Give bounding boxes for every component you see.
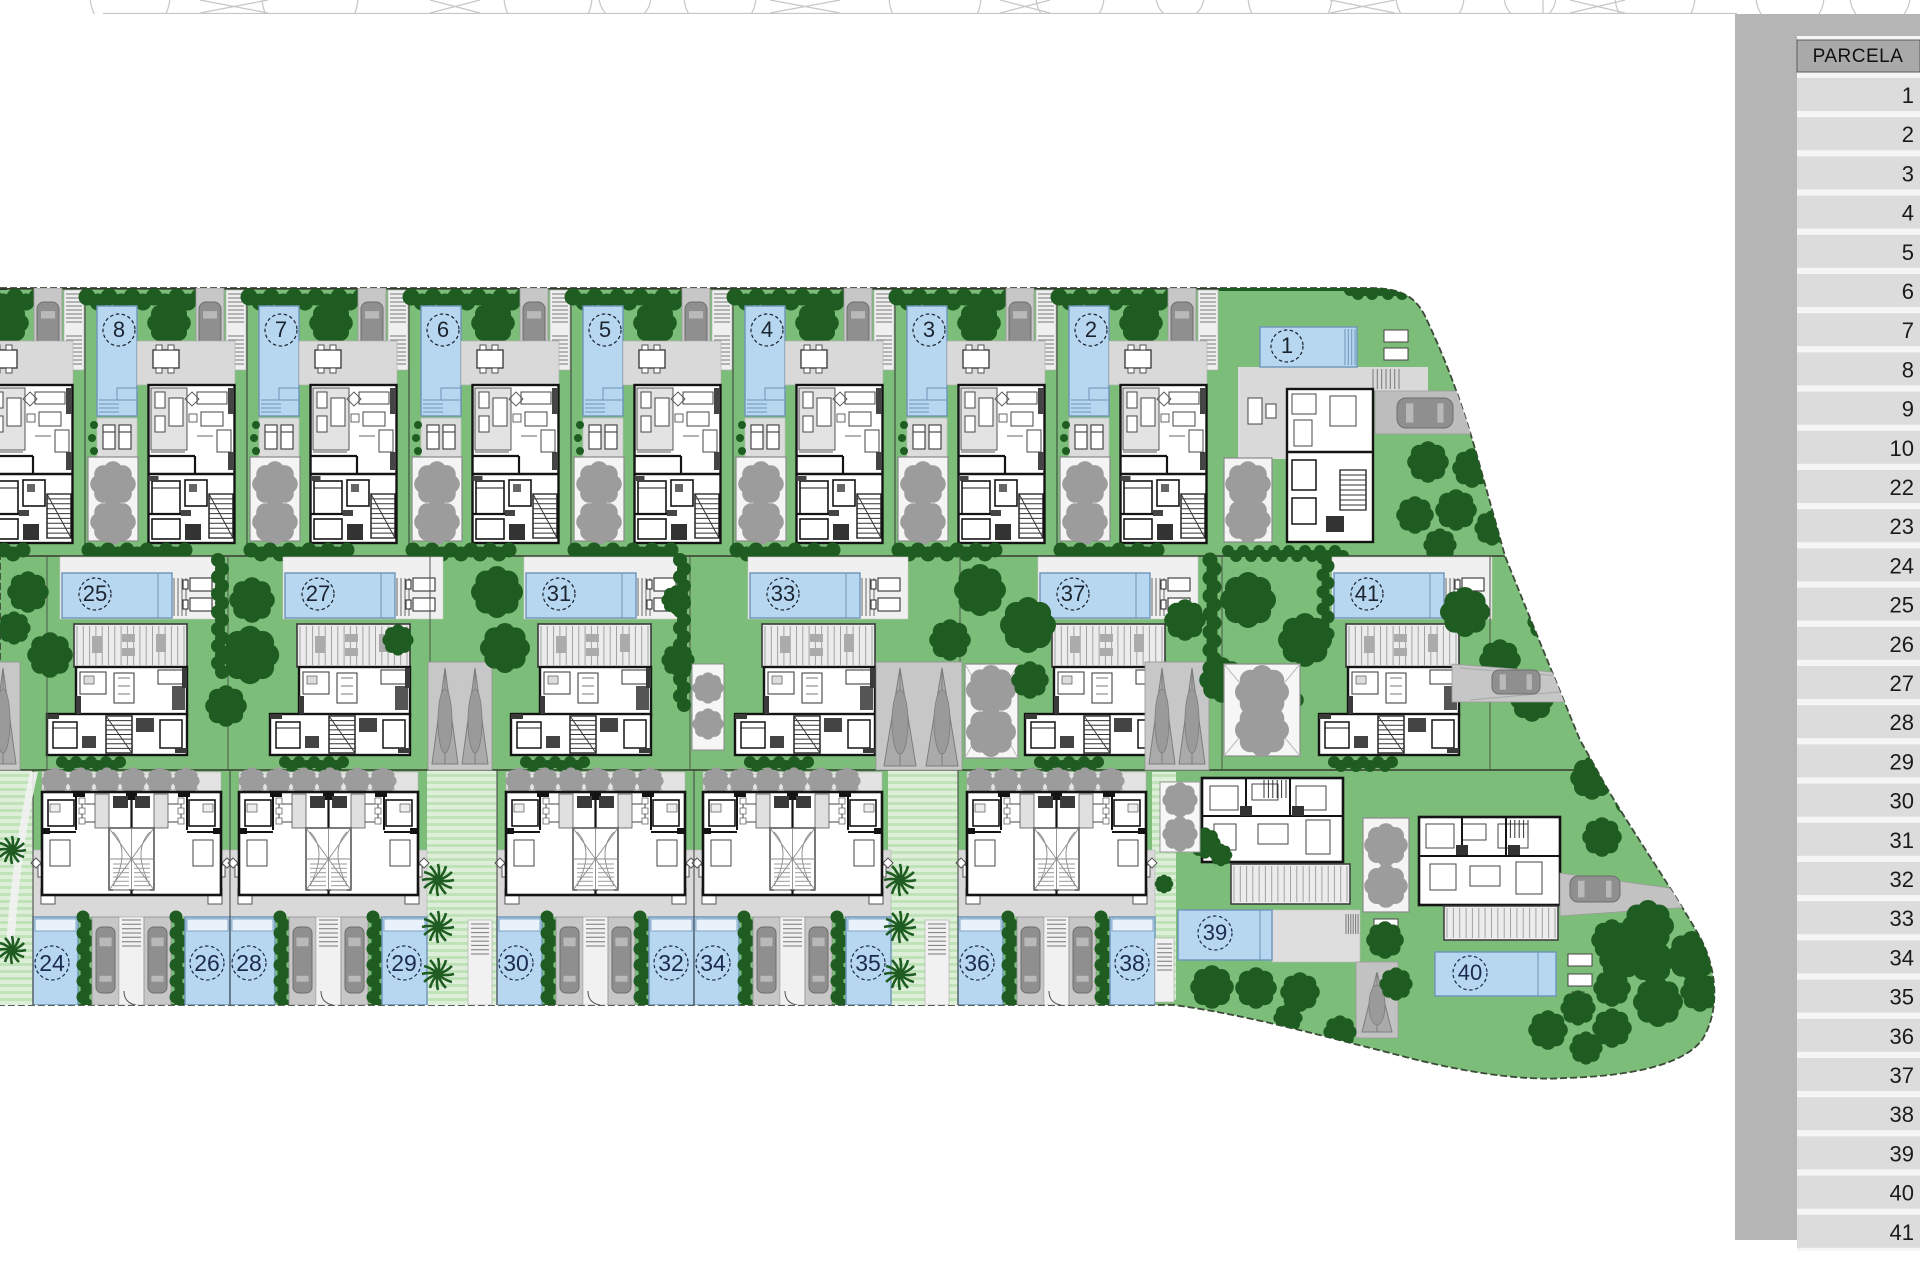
svg-text:26: 26 bbox=[194, 950, 220, 976]
svg-text:33: 33 bbox=[1890, 906, 1914, 931]
svg-text:35: 35 bbox=[1890, 985, 1914, 1010]
svg-text:31: 31 bbox=[547, 581, 571, 606]
svg-text:28: 28 bbox=[236, 950, 262, 976]
svg-text:25: 25 bbox=[83, 581, 107, 606]
svg-text:1: 1 bbox=[1281, 333, 1293, 358]
svg-text:10: 10 bbox=[1890, 436, 1914, 461]
svg-text:40: 40 bbox=[1890, 1181, 1914, 1206]
svg-text:30: 30 bbox=[1890, 789, 1914, 814]
svg-text:3: 3 bbox=[1902, 161, 1914, 186]
svg-text:36: 36 bbox=[1890, 1024, 1914, 1049]
svg-text:22: 22 bbox=[1890, 475, 1914, 500]
svg-text:38: 38 bbox=[1119, 950, 1145, 976]
svg-text:8: 8 bbox=[113, 317, 125, 342]
svg-text:6: 6 bbox=[437, 317, 449, 342]
svg-text:35: 35 bbox=[855, 950, 881, 976]
svg-text:PARCELA: PARCELA bbox=[1813, 46, 1904, 67]
svg-text:28: 28 bbox=[1890, 710, 1914, 735]
svg-text:34: 34 bbox=[700, 950, 726, 976]
svg-text:41: 41 bbox=[1355, 581, 1379, 606]
svg-text:6: 6 bbox=[1902, 279, 1914, 304]
svg-text:24: 24 bbox=[39, 950, 65, 976]
svg-text:34: 34 bbox=[1890, 945, 1914, 970]
svg-text:3: 3 bbox=[923, 317, 935, 342]
svg-text:29: 29 bbox=[1890, 749, 1914, 774]
svg-text:8: 8 bbox=[1902, 357, 1914, 382]
svg-text:24: 24 bbox=[1890, 553, 1914, 578]
svg-text:7: 7 bbox=[1902, 318, 1914, 343]
svg-text:37: 37 bbox=[1890, 1063, 1914, 1088]
svg-text:32: 32 bbox=[658, 950, 684, 976]
svg-text:5: 5 bbox=[1902, 240, 1914, 265]
svg-text:39: 39 bbox=[1890, 1141, 1914, 1166]
svg-text:27: 27 bbox=[306, 581, 330, 606]
svg-text:26: 26 bbox=[1890, 632, 1914, 657]
svg-text:7: 7 bbox=[275, 317, 287, 342]
svg-text:9: 9 bbox=[1902, 397, 1914, 422]
svg-text:30: 30 bbox=[503, 950, 529, 976]
svg-text:39: 39 bbox=[1203, 920, 1227, 945]
svg-text:1: 1 bbox=[1902, 83, 1914, 108]
svg-text:37: 37 bbox=[1061, 581, 1085, 606]
svg-text:31: 31 bbox=[1890, 828, 1914, 853]
svg-text:32: 32 bbox=[1890, 867, 1914, 892]
svg-text:27: 27 bbox=[1890, 671, 1914, 696]
svg-text:40: 40 bbox=[1458, 960, 1482, 985]
svg-text:41: 41 bbox=[1890, 1220, 1914, 1245]
svg-text:2: 2 bbox=[1902, 122, 1914, 147]
svg-text:5: 5 bbox=[599, 317, 611, 342]
svg-text:23: 23 bbox=[1890, 514, 1914, 539]
svg-text:4: 4 bbox=[761, 317, 773, 342]
svg-text:25: 25 bbox=[1890, 593, 1914, 618]
svg-text:2: 2 bbox=[1085, 317, 1097, 342]
svg-text:36: 36 bbox=[964, 950, 990, 976]
svg-text:29: 29 bbox=[391, 950, 417, 976]
svg-text:33: 33 bbox=[771, 581, 795, 606]
svg-text:4: 4 bbox=[1902, 201, 1914, 226]
svg-text:38: 38 bbox=[1890, 1102, 1914, 1127]
